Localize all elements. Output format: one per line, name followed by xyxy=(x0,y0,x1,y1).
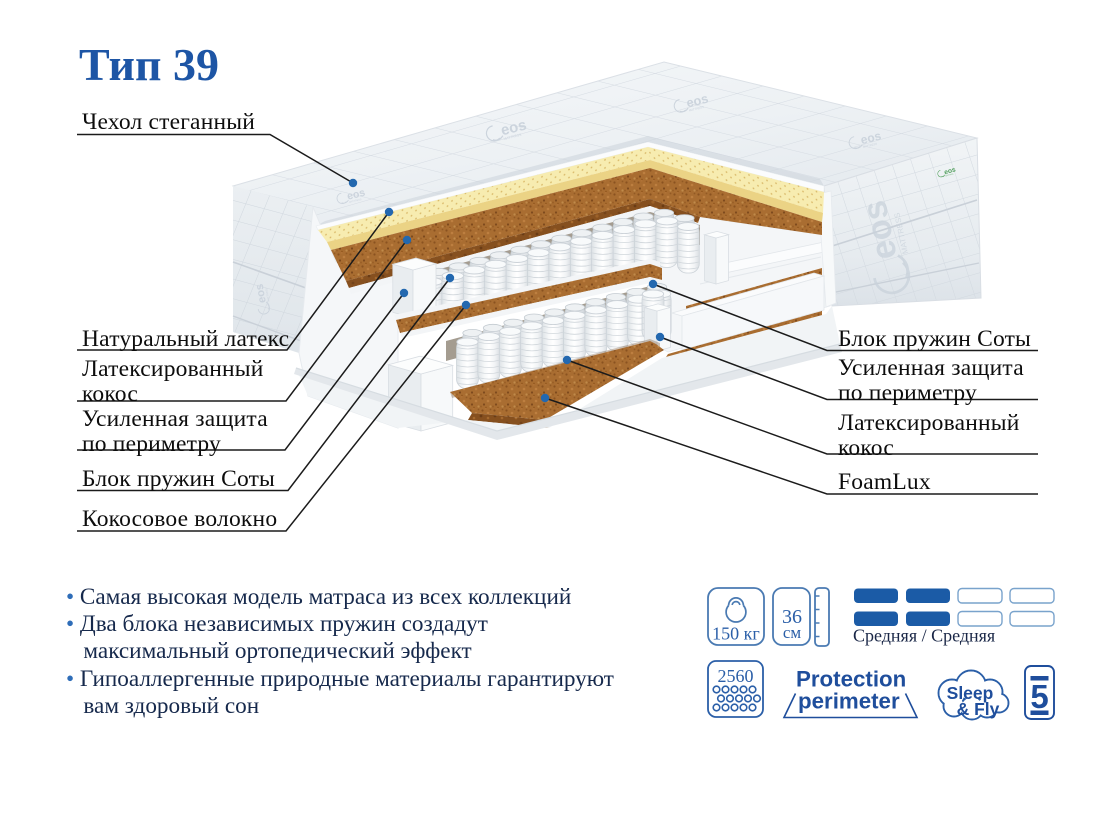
svg-text:5: 5 xyxy=(1030,678,1048,715)
svg-text:150 кг: 150 кг xyxy=(712,624,760,644)
svg-text:2560: 2560 xyxy=(718,666,754,686)
svg-text:Средняя / Средняя: Средняя / Средняя xyxy=(853,626,995,646)
svg-text:perimeter: perimeter xyxy=(798,689,900,714)
svg-text:& Fly: & Fly xyxy=(957,699,1000,719)
svg-text:см: см xyxy=(783,623,802,642)
